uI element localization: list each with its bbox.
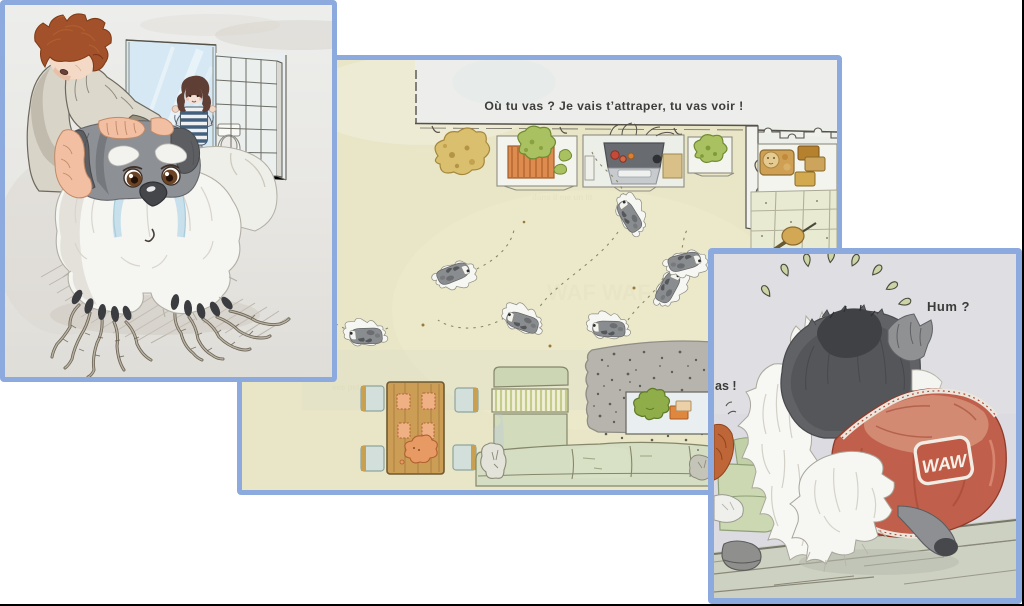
svg-text:as !: as ! <box>715 379 737 393</box>
svg-text:dans il me un lit: dans il me un lit <box>532 193 593 202</box>
svg-text:Hum ?: Hum ? <box>927 299 970 314</box>
svg-text:Où tu vas ? Je vais t’attraper: Où tu vas ? Je vais t’attraper, tu vas v… <box>484 99 743 113</box>
